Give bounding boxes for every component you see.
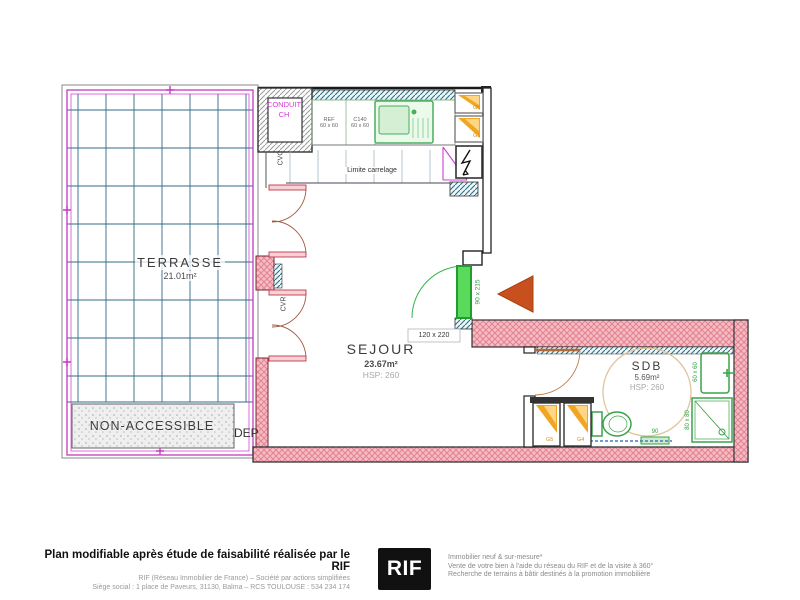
- right-wall: [483, 88, 491, 253]
- kitchen-sink: [375, 101, 433, 143]
- shower: [692, 398, 732, 442]
- cabinet-g4-label: G4: [577, 437, 584, 443]
- washbasin-dim: 90: [652, 429, 659, 435]
- wall-pier: [256, 256, 274, 290]
- bottom-wall: [253, 447, 748, 462]
- cabinets-sdb: [530, 397, 594, 446]
- limite-carrelage-label: Limite carrelage: [345, 167, 399, 174]
- footer-left-block: Plan modifiable après étude de faisabili…: [30, 549, 350, 592]
- cabinet-g5-label: G5: [546, 437, 553, 443]
- sdb-area: 5.69m²: [635, 373, 660, 382]
- footer-right-block: Immobilier neuf & sur-mesure* Vente de v…: [448, 554, 653, 580]
- dep-label: DEP: [234, 426, 259, 440]
- sejour-area: 23.67m²: [364, 359, 398, 369]
- electric-panel: [443, 146, 482, 196]
- non-accessible-label: NON-ACCESSIBLE: [88, 419, 216, 433]
- shower-dim: 80 x 80: [685, 410, 691, 430]
- cabinet-g6-label: G6: [473, 105, 480, 111]
- towel-radiator: [701, 353, 735, 393]
- rif-logo-text: RIF: [387, 557, 422, 581]
- sdb-label: SDB: [630, 359, 665, 373]
- floor-plan-page: TERRASSE 21.01m² NON-ACCESSIBLE DEP SEJO…: [0, 0, 800, 600]
- footer-service-2: Vente de votre bien à l'aide du réseau d…: [448, 563, 653, 572]
- sejour-label: SEJOUR: [345, 341, 418, 357]
- toilet: [592, 412, 631, 436]
- footer-address-line: Siège social : 1 place de Paveurs, 31130…: [30, 584, 350, 593]
- kitchen-unit-ref-size: 60 x 60: [320, 123, 338, 129]
- footer-title: Plan modifiable après étude de faisabili…: [30, 549, 350, 573]
- terrasse-area: 21.01m²: [163, 271, 196, 281]
- walls: [253, 86, 748, 462]
- footer-service-3: Recherche de terrains à bâtir destinés à…: [448, 571, 653, 580]
- footer-service-1: Immobilier neuf & sur-mesure*: [448, 554, 653, 563]
- entry-window-dim: 120 x 220: [419, 332, 450, 339]
- kitchen-unit-ref: REF 60 x 60: [320, 117, 338, 129]
- sdb-top-wall: [472, 320, 748, 347]
- terrasse-label: TERRASSE: [135, 255, 225, 270]
- conduit-label-line2: CH: [279, 110, 290, 119]
- top-wall-hatch: [312, 90, 455, 100]
- sdb-hsp: HSP: 260: [630, 383, 664, 392]
- cvc-label: CVC: [278, 151, 285, 166]
- cabinet-g1-label: G1: [473, 133, 480, 139]
- conduit-label-line1: CONDUIT: [267, 100, 301, 109]
- kitchen-unit-c140-size: 60 x 60: [351, 123, 369, 129]
- terrace-area: [62, 85, 258, 458]
- kitchen-unit-c140: C140 60 x 60: [351, 117, 369, 129]
- entry-door-dim: 90 x 215: [475, 280, 482, 305]
- sdb-right-wall: [734, 320, 748, 462]
- entrance-arrow-icon: [498, 276, 533, 312]
- floor-plan-drawing: [0, 0, 800, 540]
- rif-logo: RIF: [378, 548, 431, 590]
- footer-company-line: RIF (Réseau Immobilier de France) – Soci…: [30, 575, 350, 584]
- radiator-dim: 60 x 60: [693, 362, 699, 382]
- entrance-door: [457, 266, 471, 318]
- sejour-hsp: HSP: 260: [363, 370, 399, 380]
- cvr-label: CVR: [281, 297, 288, 312]
